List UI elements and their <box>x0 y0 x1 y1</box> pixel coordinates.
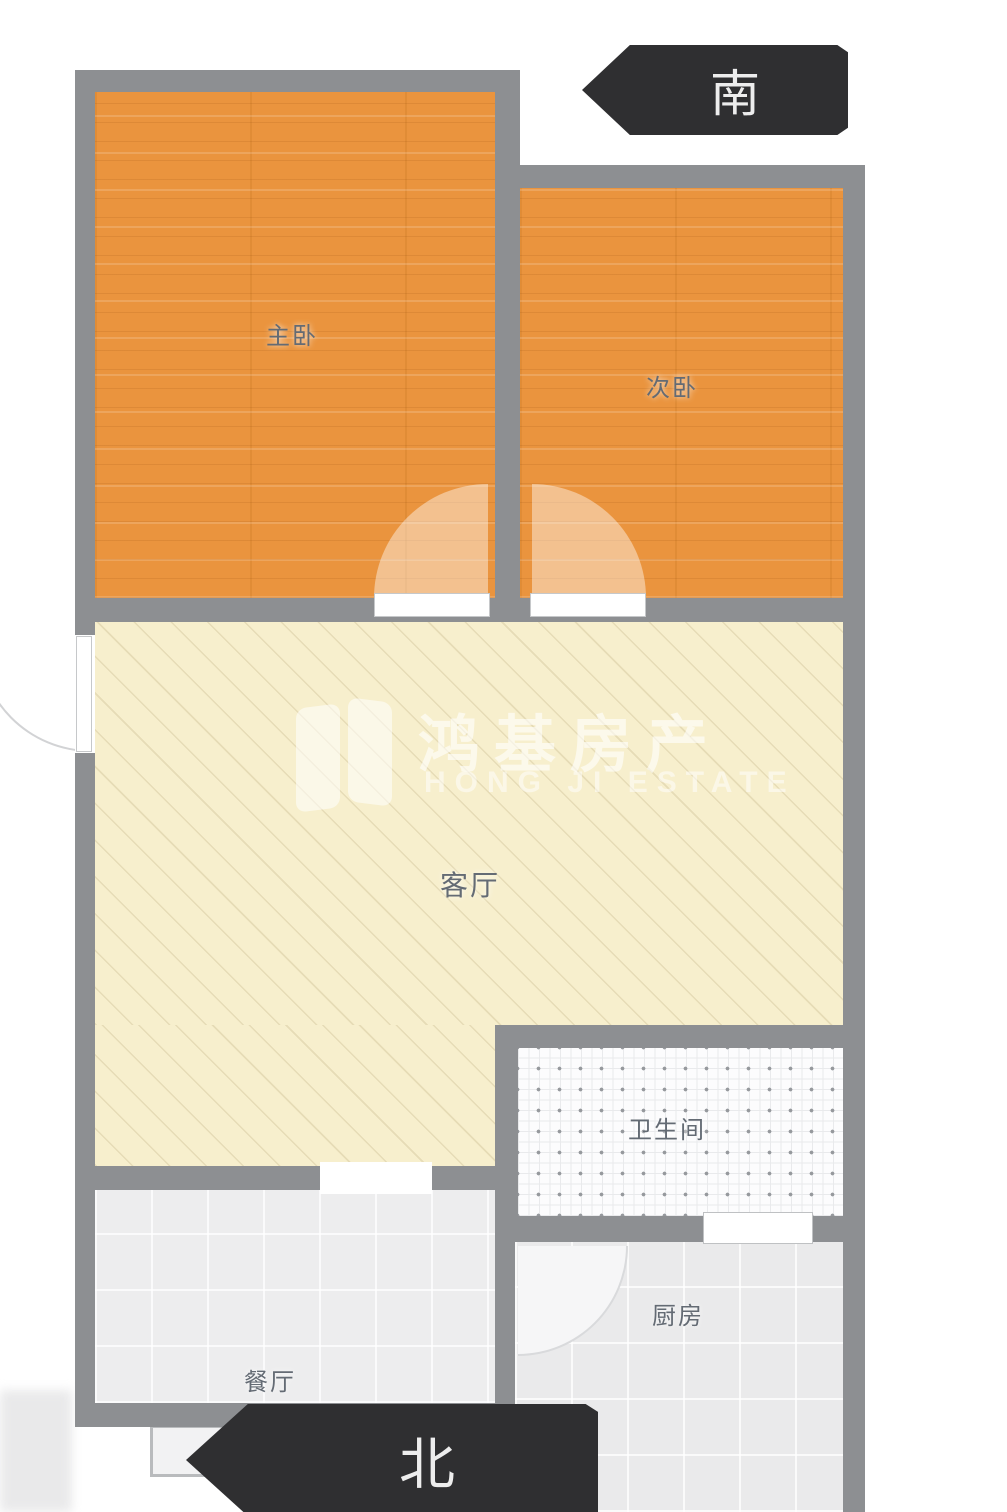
wall-dining-top <box>75 1166 515 1190</box>
label-living-room: 客厅 <box>420 864 520 904</box>
wall-bedroom-divider <box>495 70 520 622</box>
watermark-en: HONG JI ESTATE <box>424 766 796 800</box>
wall-master-top <box>75 70 520 92</box>
second-door-leaf <box>530 593 646 617</box>
compass-north-label: 北 <box>399 1420 455 1501</box>
wall-bath-left <box>495 1025 518 1240</box>
compass-south-arrow: 南 <box>582 45 848 135</box>
floor-plan: 鸿基房产 HONG JI ESTATE 主卧 次卧 客厅 卫生间 厨房 餐厅 南… <box>0 0 1007 1512</box>
entry-door-leaf <box>76 636 92 752</box>
wall-second-top <box>495 165 865 188</box>
label-bathroom: 卫生间 <box>597 1110 737 1145</box>
compass-south-label: 南 <box>710 54 760 126</box>
master-door-leaf <box>374 593 490 617</box>
scan-artifact <box>0 1390 72 1512</box>
label-kitchen: 厨房 <box>638 1296 718 1331</box>
room-living-upper <box>95 622 843 1025</box>
wall-bath-top <box>495 1025 865 1048</box>
wall-right <box>843 165 865 1512</box>
watermark-logo <box>296 700 396 812</box>
label-master-bedroom: 主卧 <box>252 316 332 351</box>
label-second-bedroom: 次卧 <box>632 368 712 403</box>
label-dining-room: 餐厅 <box>230 1362 310 1397</box>
room-living-lower <box>95 1025 495 1166</box>
bathroom-window <box>703 1212 813 1244</box>
living-dining-passage <box>320 1162 432 1194</box>
compass-north-arrow: 北 <box>186 1404 598 1512</box>
